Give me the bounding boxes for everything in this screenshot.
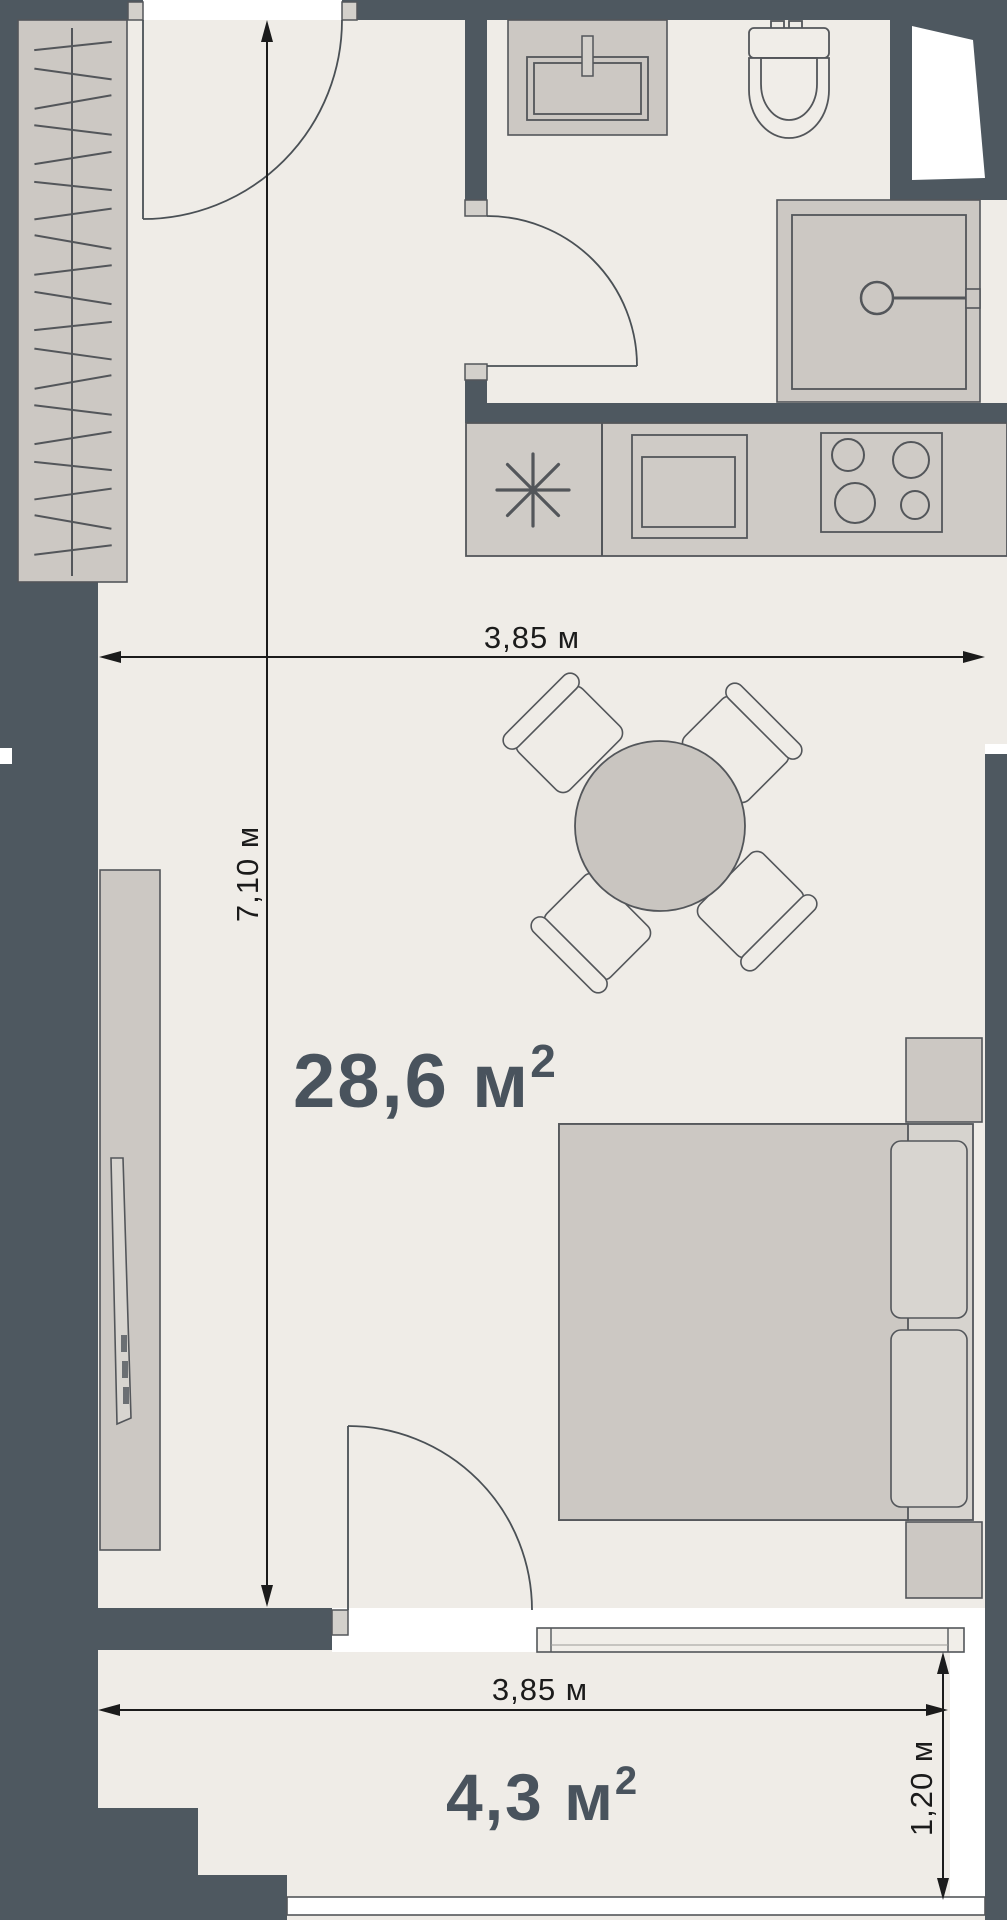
wall-left-thick: [0, 582, 98, 1808]
wall-left-thin: [0, 0, 18, 582]
balcony-frame: [332, 1610, 348, 1635]
kitchen: [466, 423, 1007, 556]
tv-icon: [100, 870, 160, 1550]
wall-right-upper: [985, 752, 1007, 1617]
wall-left-step1: [0, 1808, 198, 1875]
wall-kitchen: [465, 403, 1007, 423]
wall-bottom: [96, 1608, 332, 1650]
tv-panel-board: [100, 870, 160, 1550]
kitchen-sink-icon: [497, 454, 569, 526]
dim-room-height-label: 7,10 м: [230, 826, 265, 922]
left-wall-notch: [0, 748, 12, 764]
toilet-icon: [749, 21, 829, 138]
nightstand-bottom: [906, 1522, 982, 1598]
shower-icon: [777, 200, 980, 402]
wall-bathroom-upper: [465, 20, 487, 200]
dining-table-icon: [575, 741, 745, 911]
entrance-frame-left: [128, 2, 143, 20]
dim-balcony-width-label: 3,85 м: [492, 1672, 588, 1707]
wardrobe-icon: [18, 20, 127, 582]
entrance-frame-right: [342, 2, 357, 20]
sink-tap: [582, 36, 593, 76]
balcony-area-label: 4,3 м2: [446, 1759, 639, 1834]
pillow: [891, 1330, 967, 1507]
pillow: [891, 1141, 967, 1318]
wall-left-step2: [0, 1875, 287, 1920]
sink-icon: [508, 20, 667, 135]
living-area-label: 28,6 м2: [293, 1035, 558, 1124]
floor-plan: 3,85 м 7,10 м 3,85 м 1,20 м 28,6 м2 4,3 …: [0, 0, 1007, 1920]
balcony-rail-glazing: [287, 1897, 985, 1915]
balcony-right-strip: [950, 1652, 985, 1897]
bathroom-frame-bottom: [465, 364, 487, 380]
entrance-opening: [143, 0, 342, 20]
nightstand-top: [906, 1038, 982, 1122]
right-wall-notch: [985, 744, 1007, 754]
bathroom-frame-top: [465, 200, 487, 216]
dim-balcony-depth-label: 1,20 м: [904, 1740, 939, 1836]
floor-plan-canvas: 3,85 м 7,10 м 3,85 м 1,20 м 28,6 м2 4,3 …: [0, 0, 1007, 1920]
window-band: [537, 1628, 964, 1652]
dim-room-width-label: 3,85 м: [484, 620, 580, 655]
wall-right-lower: [985, 1617, 1007, 1920]
bed-mattress: [559, 1124, 908, 1520]
